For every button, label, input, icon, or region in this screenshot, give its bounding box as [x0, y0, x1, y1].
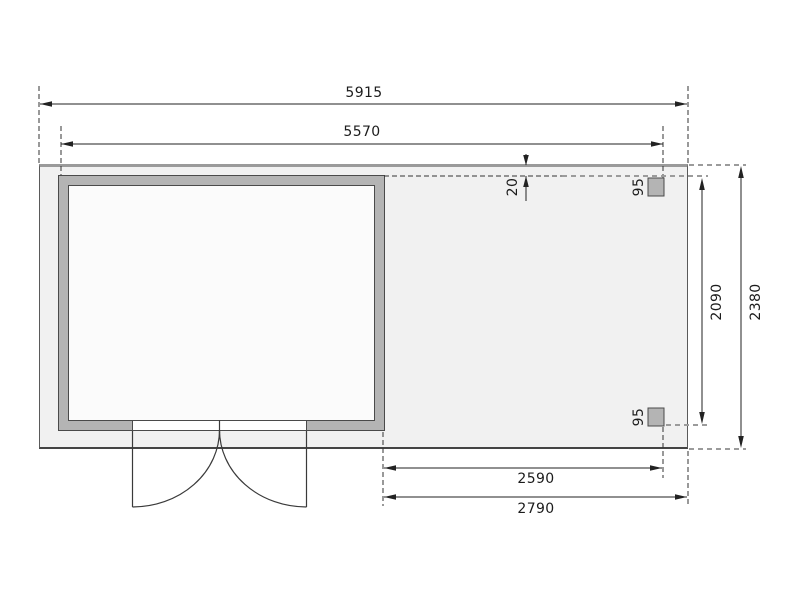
dim-annex-total-width [384, 494, 687, 500]
dim-total-width [40, 101, 687, 107]
dim-house-width-label: 5570 [343, 124, 380, 140]
post-top-size-label: 95 [631, 178, 647, 197]
post-bottom-size-label: 95 [631, 408, 647, 427]
dim-roof-offset-label: 20 [505, 178, 521, 197]
dim-annex-inner-depth [699, 178, 705, 424]
dim-total-width-label: 5915 [345, 85, 382, 101]
dim-annex-inner-depth-label: 2090 [709, 283, 725, 320]
drawing-overlay [0, 0, 800, 600]
dim-annex-inner-width [384, 465, 662, 471]
dim-annex-inner-width-label: 2590 [517, 471, 554, 487]
floor-plan-canvas: 5915 5570 20 95 95 2090 2380 2590 2790 [0, 0, 800, 600]
dim-total-depth [738, 166, 744, 448]
extension-lines [39, 86, 688, 507]
post-bottom [648, 408, 664, 426]
dim-annex-total-width-label: 2790 [517, 501, 554, 517]
dim-roof-offset [523, 154, 529, 201]
dim-total-depth-label: 2380 [748, 283, 764, 320]
post-top [648, 178, 664, 196]
double-door [133, 420, 307, 507]
door-left-swing-arc [133, 430, 220, 507]
dim-house-width [61, 141, 663, 147]
door-right-swing-arc [220, 430, 307, 507]
